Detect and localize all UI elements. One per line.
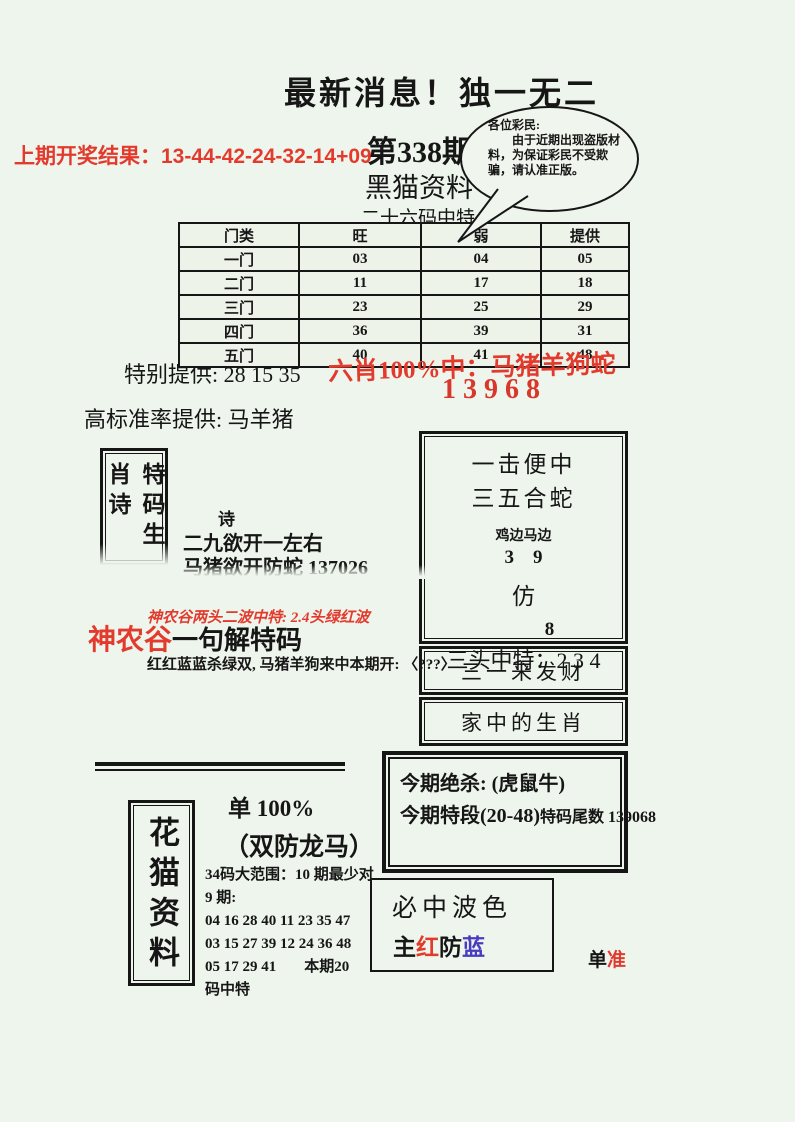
guard-color-blue: 蓝 — [462, 935, 485, 960]
table-cell: 二门 — [179, 271, 299, 295]
range-line: 34码大范围：10 期最少对 — [205, 864, 390, 887]
table-row: 二门 11 17 18 — [179, 271, 629, 295]
notice-salutation: 各位彩民: — [488, 118, 620, 133]
table-cell: 17 — [421, 271, 541, 295]
table-cell: 31 — [541, 319, 629, 343]
table-row: 四门 36 39 31 — [179, 319, 629, 343]
poem-line-fade — [178, 565, 428, 579]
current-issue-label: 本期20 — [304, 956, 349, 979]
lottery-info-sheet: 最新消息！独一无二 上期开奖结果：13-44-42-24-32-14+09 第3… — [0, 0, 795, 1122]
range-numbers: 04 16 28 40 11 23 35 47 — [205, 910, 390, 933]
main-label: 主 — [393, 935, 416, 960]
table-cell: 18 — [541, 271, 629, 295]
kill-segment-tail: 特码尾数 139068 — [540, 809, 656, 826]
table-header-cell: 提供 — [541, 223, 629, 247]
strike-line: 仿 — [512, 577, 535, 611]
shennong-brand: 神农谷 — [88, 624, 172, 655]
strike-numbers: 3 9 — [505, 547, 543, 569]
huamao-vertical-title: 花猫资料 — [139, 816, 184, 976]
table-header-cell: 旺 — [299, 223, 421, 247]
range-numbers: 03 15 27 39 12 24 36 48 — [205, 933, 390, 956]
table-cell: 05 — [541, 247, 629, 271]
high-standard-line: 高标准率提供: 马羊猪 — [84, 402, 294, 434]
table-cell: 04 — [421, 247, 541, 271]
zodiac-banner-box: 家中的生肖 — [419, 697, 628, 746]
table-header-row: 门类 旺 弱 提供 — [179, 223, 629, 247]
kill-segment-line: 今期特段(20-48)特码尾数 139068 — [400, 799, 620, 828]
wave-color-title: 必中波色 — [392, 888, 512, 924]
dan-100-line: 单 100% — [228, 789, 314, 823]
table-cell: 29 — [541, 295, 629, 319]
accuracy-mark-black: 单 — [588, 950, 607, 971]
table-row: 一门 03 04 05 — [179, 247, 629, 271]
range-numbers: 05 17 29 41 — [205, 956, 276, 979]
table-cell: 五门 — [179, 343, 299, 367]
poem-box-fade — [94, 544, 176, 572]
fortune-banner-box: 三一来发财 — [419, 646, 628, 695]
kill-segment-main: 今期特段(20-48) — [400, 805, 540, 827]
range-line: 9 期: — [205, 887, 390, 910]
table-cell: 四门 — [179, 319, 299, 343]
strike-number: 8 — [545, 619, 555, 641]
range-numbers-block: 34码大范围：10 期最少对 9 期: 04 16 28 40 11 23 35… — [205, 864, 390, 1002]
table-cell: 11 — [299, 271, 421, 295]
shennong-title: 一句解特码 — [172, 625, 302, 655]
fortune-banner-text: 三一来发财 — [461, 656, 586, 686]
speech-bubble-tail-icon — [452, 186, 536, 248]
one-strike-box: 一击便中 三五合蛇 鸡边马边 3 9 仿 8 三头中特：2 3 4 — [419, 431, 628, 644]
huamao-material-box: 花猫资料 — [128, 800, 195, 986]
double-guard-line: （双防龙马） — [224, 827, 374, 863]
strike-line: 鸡边马边 — [496, 525, 552, 545]
kill-forecast-box: 今期绝杀: (虎鼠牛) 今期特段(20-48)特码尾数 139068 — [382, 751, 628, 873]
table-row: 三门 23 25 29 — [179, 295, 629, 319]
zodiac-banner-text: 家中的生肖 — [461, 707, 586, 737]
table-cell: 三门 — [179, 295, 299, 319]
shennong-riddle-line: 红红蓝蓝杀绿双, 马猪羊狗来中本期开: 〈???〉 — [147, 653, 456, 674]
range-last-row: 05 17 29 41 本期20 — [205, 956, 390, 979]
strike-line: 一击便中 — [472, 445, 576, 479]
table-header-cell: 门类 — [179, 223, 299, 247]
issue-number: 第338期 — [367, 127, 472, 171]
strike-line: 三五合蛇 — [472, 479, 576, 513]
table-cell: 03 — [299, 247, 421, 271]
accuracy-mark-red: 准 — [607, 950, 626, 971]
wave-color-pick: 主红防蓝 — [393, 928, 485, 962]
six-zodiac-claim: 六肖100%中：马猪羊狗蛇 — [328, 344, 616, 388]
kill-line: 今期绝杀: (虎鼠牛) — [400, 767, 620, 796]
table-cell: 一门 — [179, 247, 299, 271]
table-cell: 39 — [421, 319, 541, 343]
notice-text: 各位彩民: 由于近期出现盗版材料，为保证彩民不受欺骗，请认准正版。 — [488, 118, 620, 178]
accuracy-mark: 单准 — [588, 945, 626, 972]
table-cell: 23 — [299, 295, 421, 319]
table-cell: 36 — [299, 319, 421, 343]
main-color-red: 红 — [416, 935, 439, 960]
guard-label: 防 — [439, 935, 462, 960]
previous-draw-result: 上期开奖结果：13-44-42-24-32-14+09 — [14, 140, 372, 170]
section-divider — [95, 762, 345, 771]
table-cell: 25 — [421, 295, 541, 319]
range-tail-label: 码中特 — [205, 979, 390, 1002]
notice-body: 由于近期出现盗版材料，为保证彩民不受欺骗，请认准正版。 — [488, 133, 620, 178]
shennong-headline: 神农谷一句解特码 — [88, 618, 302, 658]
